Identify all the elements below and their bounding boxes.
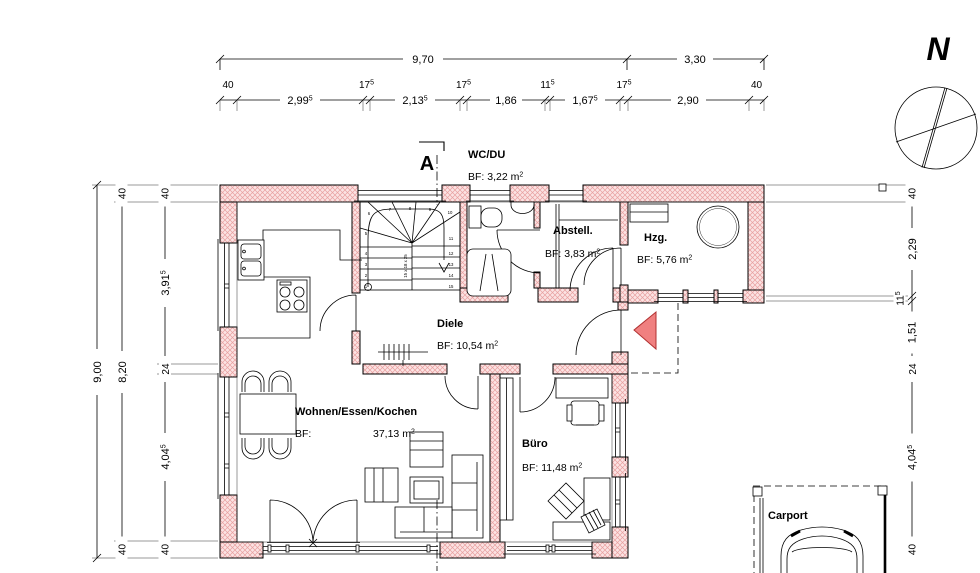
carport-label: Carport [768, 510, 808, 522]
dim-small: 175 [616, 80, 631, 92]
shower [467, 249, 511, 296]
carport-post [753, 487, 762, 496]
room-area-wohnen: 37,13 m2 [373, 428, 415, 440]
stair-step-number: 6 [368, 211, 371, 216]
stair-step-number: 3 [365, 262, 368, 267]
staircase: 1 2 3 4 5 6 7 8 9 10 11 12 13 14 15 15 x… [360, 202, 460, 291]
dim-total-left: 9,70 [412, 54, 433, 66]
washbasin [511, 202, 534, 214]
entrance-arrow [634, 312, 656, 349]
north-indicator: N [895, 31, 977, 169]
dining-set [240, 371, 296, 459]
tv-board [410, 432, 443, 467]
stair-step-number: 5 [365, 231, 368, 236]
dim-left-inner: 40 [161, 188, 172, 200]
carport: Carport [753, 486, 887, 573]
room-area-hzg: BF: 5,76 m2 [637, 254, 692, 266]
room-area-wc: BF: 3,22 m2 [468, 171, 523, 183]
room-area-diele: BF: 10,54 m2 [437, 340, 498, 352]
dim-left-mid: 8,20 [117, 361, 129, 382]
radiator [378, 344, 428, 366]
dim-inline: 2,90 [677, 95, 698, 107]
carport-post [878, 486, 887, 495]
kitchen-fixtures [237, 230, 362, 338]
room-name-abstell: Abstell. [553, 225, 593, 237]
stair-step-number: 13 [449, 262, 454, 267]
dim-left-inner: 40 [161, 544, 172, 556]
dim-small: 175 [359, 80, 374, 92]
stair-step-number: 1 [365, 284, 368, 289]
dim-right: 2,29 [907, 238, 919, 259]
room-name-wohnen: Wohnen/Essen/Kochen [295, 406, 417, 418]
floor-plan-drawing: 1 2 3 4 5 6 7 8 9 10 11 12 13 14 15 15 x… [0, 0, 980, 573]
boiler-tank [697, 206, 739, 248]
room-area-prefix-wohnen: BF: [295, 428, 311, 440]
room-area-buero: BF: 11,48 m2 [522, 462, 582, 474]
dim-total-right: 3,30 [684, 54, 705, 66]
dim-right: 40 [908, 544, 919, 556]
dim-left-mid: 40 [118, 188, 129, 200]
stair-step-number: 2 [365, 273, 368, 278]
stair-riser-note: 15 x 18 x 25 [403, 254, 408, 278]
room-name-diele: Diele [437, 318, 463, 330]
stair-step-number: 14 [449, 273, 454, 278]
compass-needle [896, 88, 976, 169]
room-area-abstell: BF: 3,83 m2 [545, 248, 600, 260]
dim-small: 175 [456, 80, 471, 92]
stair-step-number: 4 [365, 251, 368, 256]
stair-step-number: 7 [389, 207, 392, 212]
stair-step-number: 8 [409, 206, 412, 211]
toilet [469, 206, 481, 228]
marker-square [879, 184, 886, 191]
office-furniture [500, 378, 610, 540]
stair-step-number: 11 [449, 236, 454, 241]
wc-fixtures [467, 202, 534, 296]
right-dimension-chain: 40 2,29 115 1,51 24 4,045 40 [766, 181, 919, 563]
dim-right: 24 [908, 363, 919, 375]
stair-step-number: 15 [449, 284, 454, 289]
room-name-buero: Büro [522, 438, 548, 450]
dim-left-inner: 24 [161, 363, 172, 375]
room-name-hzg: Hzg. [644, 232, 667, 244]
dim-inline: 1,86 [495, 95, 516, 107]
dim-left-mid: 40 [118, 544, 129, 556]
storage-heating-fixtures [556, 204, 739, 288]
section-label: A [420, 153, 434, 175]
room-name-wc: WC/DU [468, 149, 505, 161]
dim-left-total: 9,00 [92, 361, 104, 382]
stair-step-number: 12 [449, 251, 454, 256]
top-dimension-chains: 9,70 3,30 40 175 175 115 175 40 2,995 2,… [216, 53, 768, 111]
left-dimension-chains: 9,00 40 8,20 40 40 3,915 24 4,045 40 [90, 181, 218, 563]
drawing-board [548, 483, 584, 519]
office-chair [571, 401, 599, 425]
dim-right: 40 [908, 188, 919, 200]
sofa-group [365, 432, 483, 538]
dim-small: 40 [222, 80, 234, 91]
desk [556, 378, 608, 398]
stair-step-number: 10 [448, 210, 453, 215]
dim-small: 115 [540, 80, 554, 92]
dim-right: 1,51 [907, 322, 919, 343]
north-label: N [926, 31, 950, 67]
dim-small: 40 [751, 80, 763, 91]
car [781, 527, 863, 573]
coffee-table [365, 468, 398, 502]
